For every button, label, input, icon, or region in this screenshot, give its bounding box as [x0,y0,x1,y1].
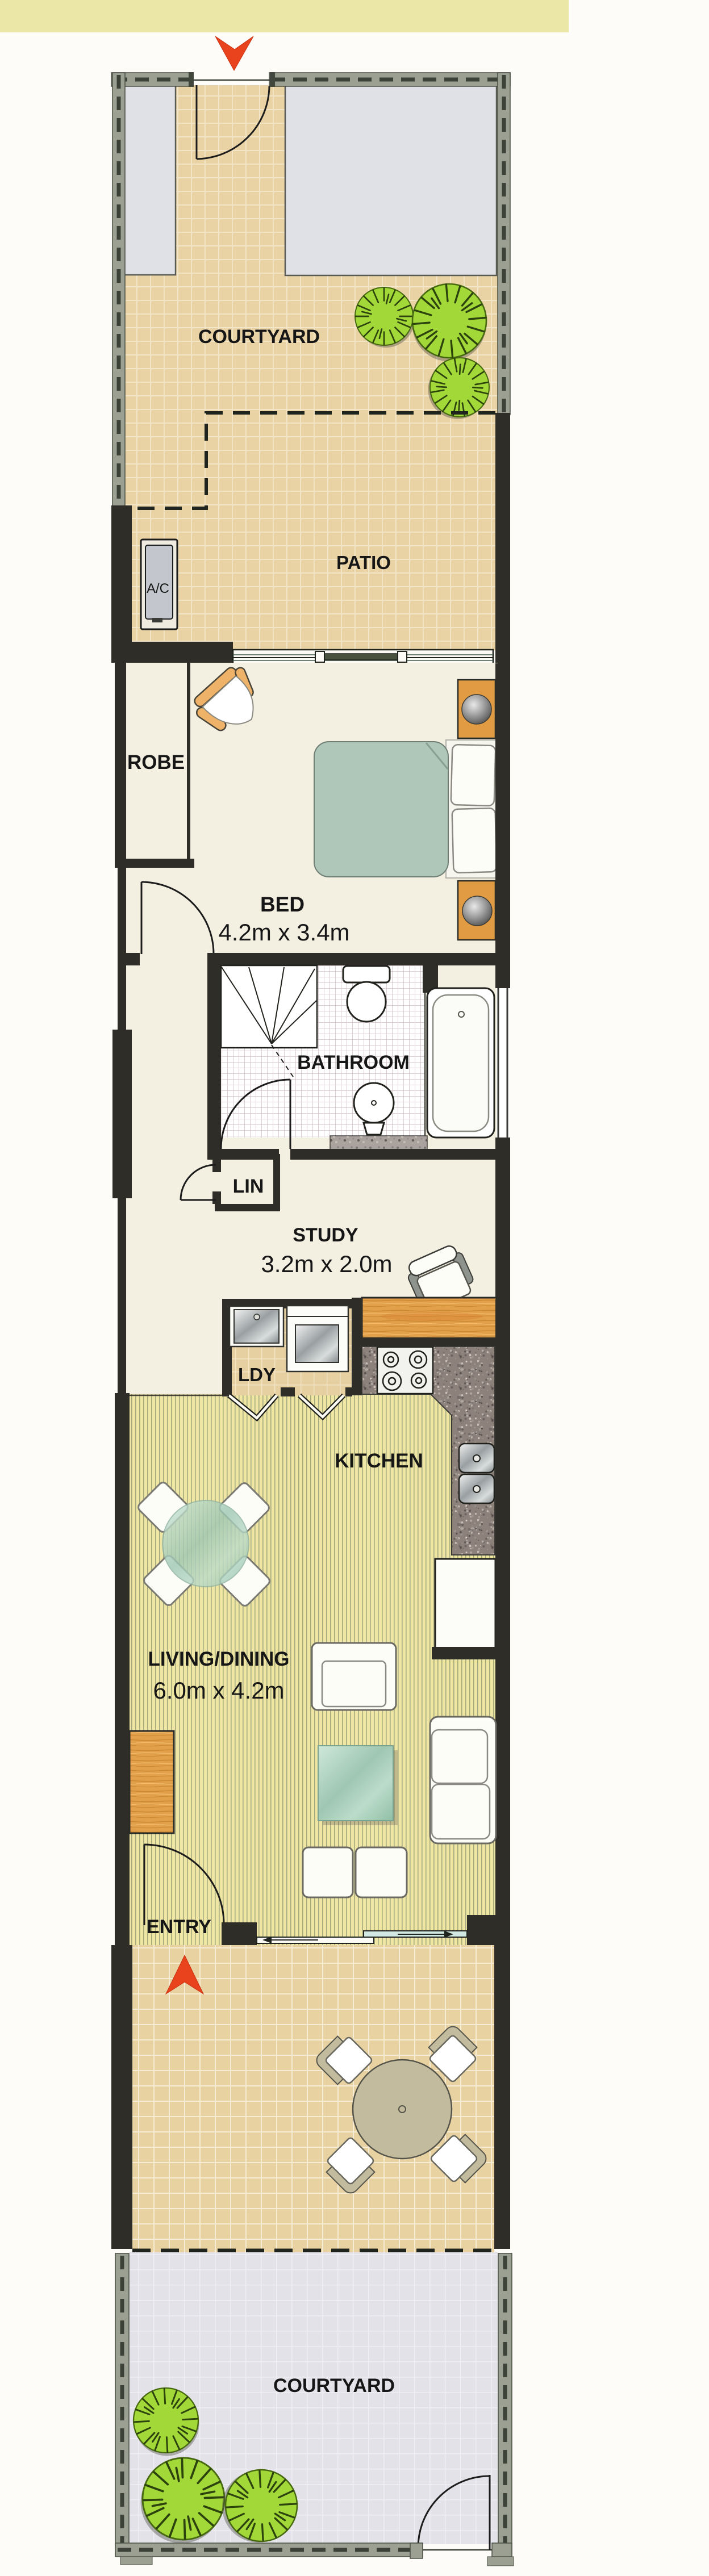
svg-text:A/C: A/C [147,581,169,596]
svg-text:6.0m x 4.2m: 6.0m x 4.2m [153,1677,284,1704]
svg-text:LIVING/DINING: LIVING/DINING [148,1648,290,1670]
svg-text:COURTYARD: COURTYARD [273,2375,395,2397]
svg-text:LDY: LDY [238,1364,276,1385]
svg-text:ENTRY: ENTRY [147,1916,211,1938]
svg-text:COURTYARD: COURTYARD [198,326,320,348]
svg-text:PATIO: PATIO [336,552,391,573]
svg-text:3.2m x 2.0m: 3.2m x 2.0m [261,1251,392,1277]
svg-text:ROBE: ROBE [127,751,185,773]
svg-text:KITCHEN: KITCHEN [335,1450,423,1472]
svg-text:BATHROOM: BATHROOM [297,1052,410,1073]
svg-text:LIN: LIN [233,1176,264,1197]
svg-text:STUDY: STUDY [293,1224,358,1246]
svg-text:4.2m x 3.4m: 4.2m x 3.4m [218,919,349,946]
svg-text:BED: BED [260,893,305,916]
